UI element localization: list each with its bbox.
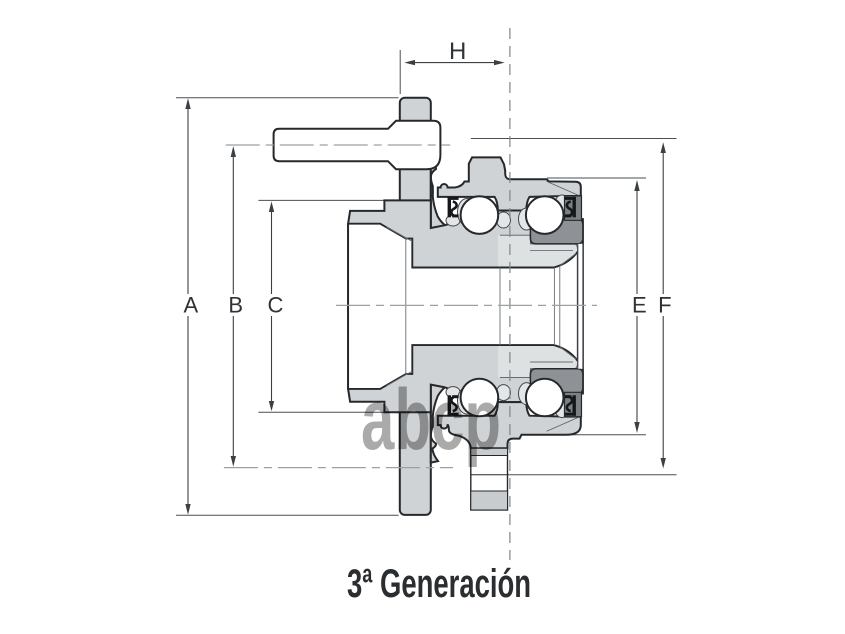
- svg-text:C: C: [268, 293, 284, 318]
- svg-text:F: F: [658, 293, 671, 318]
- svg-text:B: B: [228, 293, 243, 318]
- svg-text:E: E: [632, 293, 647, 318]
- svg-text:3ª Generación: 3ª Generación: [347, 562, 531, 606]
- svg-text:H: H: [449, 38, 466, 65]
- svg-text:A: A: [183, 293, 198, 318]
- svg-text:abcp: abcp: [361, 372, 501, 468]
